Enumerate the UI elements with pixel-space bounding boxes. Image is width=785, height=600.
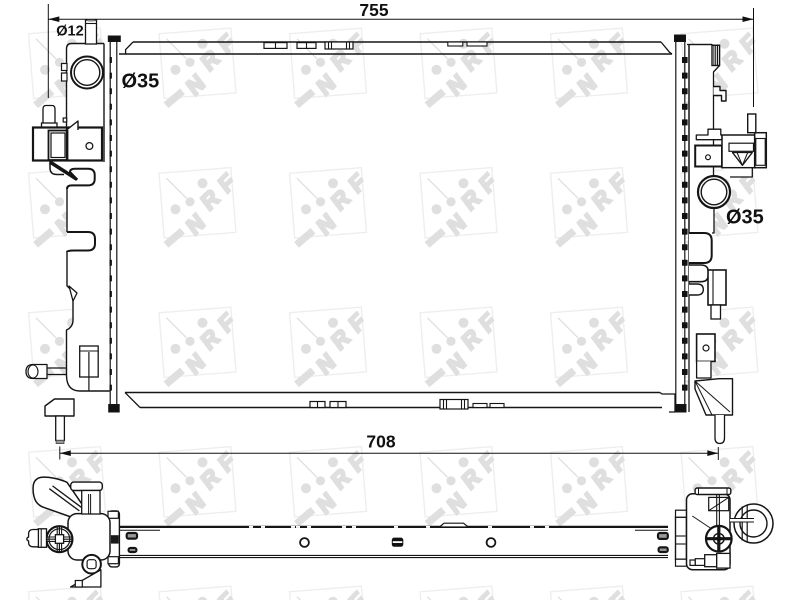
svg-text:Ø12: Ø12	[56, 24, 83, 40]
svg-text:708: 708	[366, 432, 395, 452]
svg-text:Ø35: Ø35	[726, 207, 764, 229]
svg-text:755: 755	[359, 0, 388, 20]
svg-text:Ø35: Ø35	[122, 71, 160, 93]
